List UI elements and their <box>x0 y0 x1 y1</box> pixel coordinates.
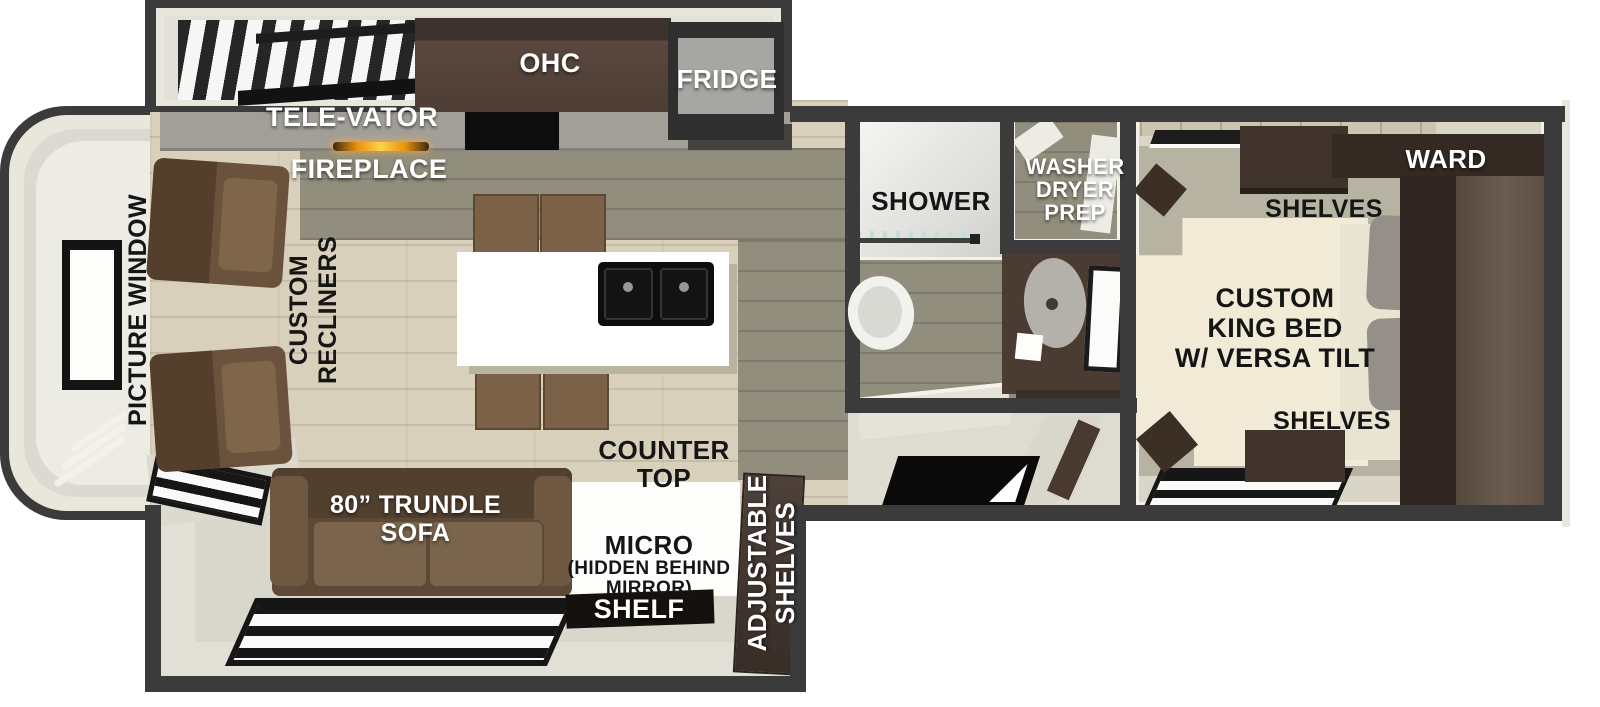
bar-stool <box>473 194 539 254</box>
label-line: COUNTER <box>598 436 729 464</box>
label-ward: WARD <box>1386 144 1506 174</box>
label-line: SHELVES <box>771 502 799 624</box>
bathroom-bottom-wall <box>845 398 1137 413</box>
label-picture-window: PICTURE WINDOW <box>123 190 153 430</box>
bar-stool <box>540 194 606 254</box>
lower-living-bottom-wall <box>145 676 806 692</box>
bar-stool <box>543 366 609 430</box>
wardrobe-side <box>1400 176 1458 506</box>
main-top-wall <box>790 106 1565 122</box>
shower-rod-end <box>970 234 980 244</box>
entry-step-well <box>882 456 1040 506</box>
rv-floorplan: OHC FRIDGE TELE-VATOR FIREPLACE PICTURE … <box>0 0 1600 707</box>
entry-step-wedge <box>989 464 1027 502</box>
sink-basin-right <box>660 268 709 320</box>
label-shelf: SHELF <box>566 594 712 626</box>
sink-basin-left <box>604 268 653 320</box>
label-shower: SHOWER <box>860 186 1002 216</box>
label-king-bed: CUSTOM KING BED W/ VERSA TILT <box>1160 282 1390 374</box>
label-washer-dryer-prep: WASHER DRYER PREP <box>1018 154 1132 224</box>
picture-window-glass <box>70 250 114 380</box>
main-bottom-wall <box>790 505 1562 521</box>
label-micro: MICRO <box>566 530 732 560</box>
sink-drain <box>1046 298 1058 310</box>
label-fireplace: FIREPLACE <box>287 153 451 187</box>
label-line: KING BED <box>1207 313 1342 343</box>
label-line: DRYER <box>1036 178 1114 201</box>
washer-closet-bottom-wall <box>1006 240 1122 254</box>
label-line: RECLINERS <box>314 236 343 384</box>
label-line: CUSTOM <box>1216 283 1335 313</box>
shower-curtain-rod <box>846 238 976 243</box>
island-sink <box>598 262 714 326</box>
bar-stool <box>475 366 541 430</box>
toilet-seat <box>858 286 902 338</box>
label-fridge: FRIDGE <box>664 63 790 95</box>
shelf-box-bottom <box>1245 430 1345 482</box>
vanity-towel <box>1015 333 1044 362</box>
label-shelves-top: SHELVES <box>1254 194 1394 224</box>
label-line: 80” TRUNDLE <box>330 491 501 519</box>
label-line: TOP <box>637 464 691 492</box>
label-line: WASHER <box>1026 155 1125 178</box>
label-line: W/ VERSA TILT <box>1175 343 1375 373</box>
shower-right-wall <box>1000 112 1014 254</box>
label-counter-top: COUNTER TOP <box>584 436 744 492</box>
label-line: ADJUSTABLE <box>743 475 771 652</box>
recliner-top <box>146 157 290 288</box>
outer-trim-right <box>1562 100 1570 527</box>
label-line: PREP <box>1044 201 1106 224</box>
kitchen-floor-column <box>738 240 848 480</box>
label-televator: TELE-VATOR <box>252 102 452 134</box>
label-trundle-sofa: 80” TRUNDLE SOFA <box>298 490 533 548</box>
label-adjustable-shelves: ADJUSTABLE SHELVES <box>743 448 799 678</box>
recliner-bottom <box>149 345 293 472</box>
label-line: CUSTOM <box>285 255 314 365</box>
sofa-window <box>225 598 577 666</box>
lower-living-left-wall <box>145 505 161 692</box>
label-custom-recliners: CUSTOM RECLINERS <box>285 195 343 425</box>
label-shelves-bottom: SHELVES <box>1262 406 1402 436</box>
bathroom-left-wall <box>845 106 860 400</box>
wardrobe-face <box>1456 176 1544 506</box>
fireplace-glow <box>333 142 429 151</box>
main-right-wall <box>1544 106 1562 521</box>
label-ohc: OHC <box>480 48 620 80</box>
label-line: SOFA <box>381 519 451 547</box>
label-line: (HIDDEN BEHIND <box>568 559 731 579</box>
